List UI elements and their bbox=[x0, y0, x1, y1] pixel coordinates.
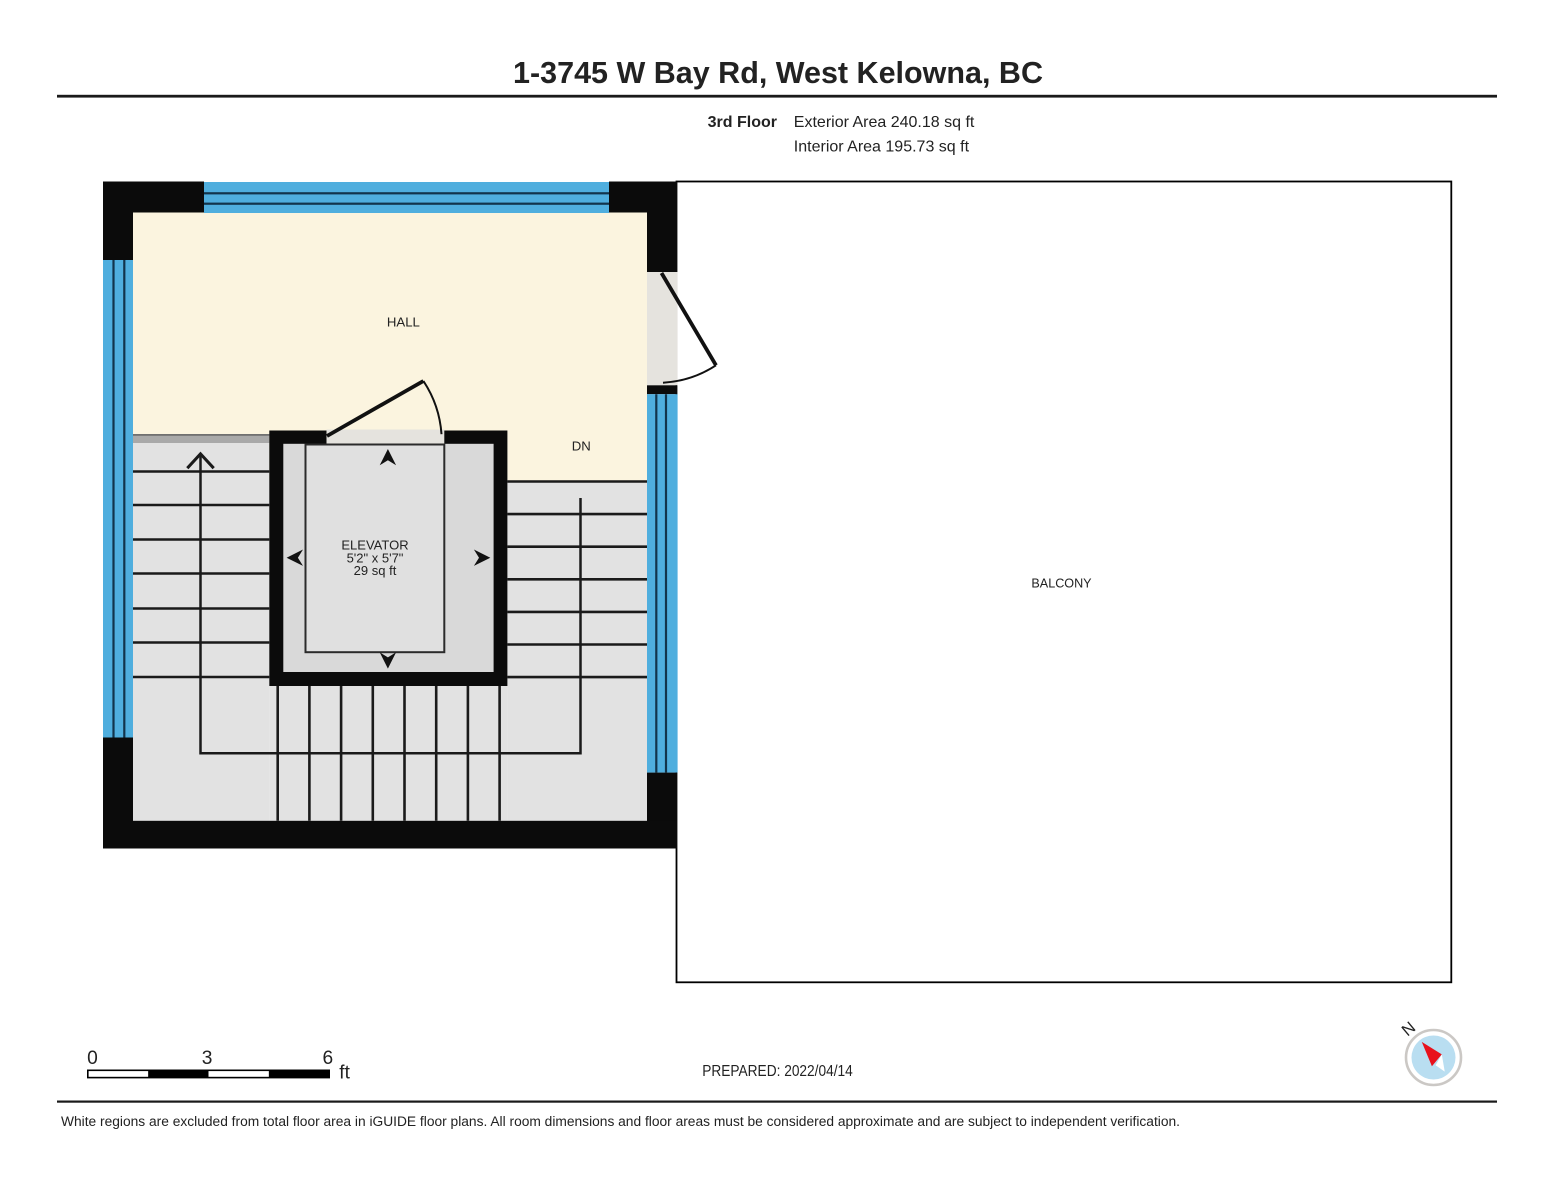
svg-text:Interior Area 195.73 sq ft: Interior Area 195.73 sq ft bbox=[794, 139, 970, 156]
svg-text:1-3745 W Bay Rd, West Kelowna,: 1-3745 W Bay Rd, West Kelowna, BC bbox=[513, 56, 1043, 90]
svg-text:3: 3 bbox=[202, 1048, 213, 1069]
svg-text:6: 6 bbox=[322, 1048, 333, 1069]
svg-text:29 sq ft: 29 sq ft bbox=[354, 563, 397, 578]
svg-text:PREPARED: 2022/04/14: PREPARED: 2022/04/14 bbox=[702, 1063, 853, 1080]
svg-text:ft: ft bbox=[339, 1063, 350, 1084]
svg-text:White regions are excluded fro: White regions are excluded from total fl… bbox=[61, 1114, 1180, 1130]
svg-text:0: 0 bbox=[87, 1048, 98, 1069]
svg-text:3rd Floor: 3rd Floor bbox=[708, 114, 777, 131]
svg-text:HALL: HALL bbox=[387, 315, 420, 330]
svg-text:Exterior Area 240.18 sq ft: Exterior Area 240.18 sq ft bbox=[794, 114, 975, 131]
svg-text:BALCONY: BALCONY bbox=[1031, 577, 1092, 591]
svg-text:DN: DN bbox=[572, 439, 591, 454]
